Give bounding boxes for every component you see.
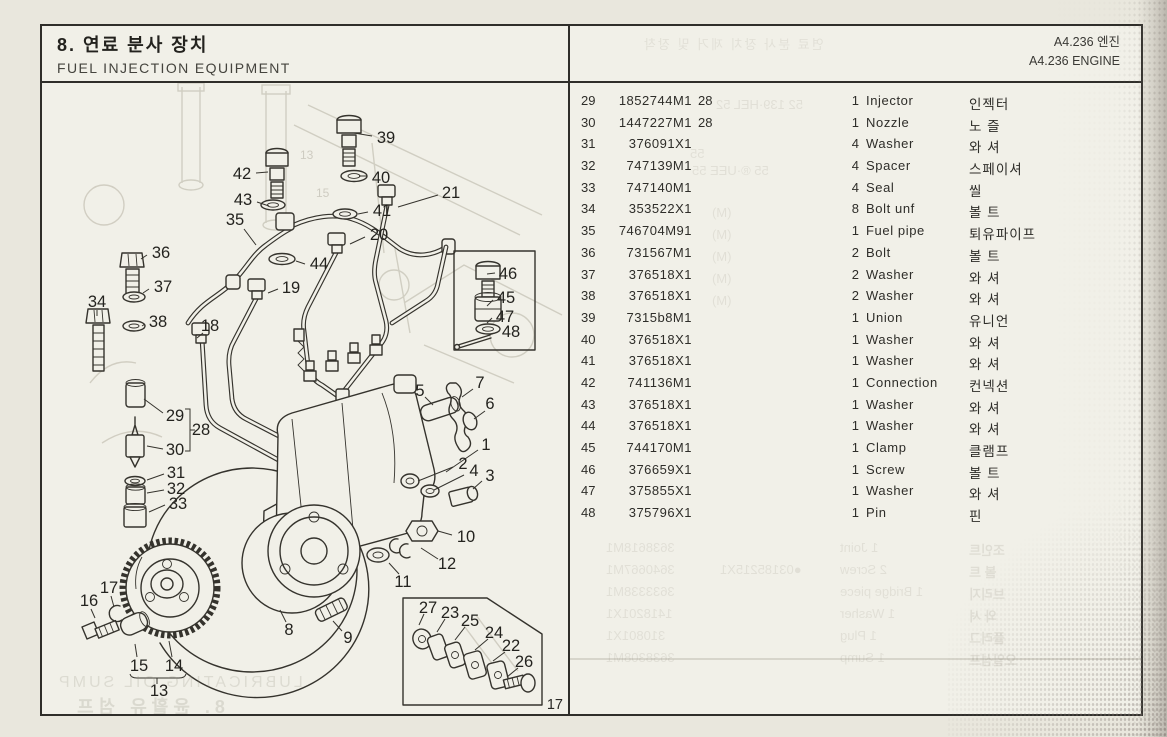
callout-28: 28 [192,421,210,439]
cell-part-number: 741136M1 [604,375,692,390]
cell-description: Pin [866,505,887,520]
bleed-through-mark: 1 Joint [840,540,878,555]
pipe-union-fittings [192,185,395,343]
callout-5: 5 [415,382,424,400]
cell-description: Clamp [866,440,907,455]
cell-description: Injector [866,93,913,108]
callout-34: 34 [88,293,106,311]
cell-qty: 1 [830,93,859,108]
cell-qty: 2 [830,288,859,303]
cell-part-number: 376518X1 [604,288,692,303]
cell-description-korean: 와 셔 [969,267,1001,287]
callout-6: 6 [485,395,494,413]
cell-description: Washer [866,136,914,151]
callout-21: 21 [442,184,460,202]
page-content: 13 15 [42,83,1141,714]
callout-36: 36 [152,244,170,262]
callout-30: 30 [166,441,184,459]
callout-38: 38 [149,313,167,331]
leader-line-20 [350,237,365,244]
parts-row: 31376091X14Washer와 셔 [570,134,1141,156]
bleed-through-mark: 와 셔 [969,606,997,625]
injector-parts-stack [124,380,146,528]
cell-description-korean: 와 셔 [969,353,1001,373]
parts-row: 40376518X11Washer와 셔 [570,330,1141,352]
cell-note: 28 [698,115,712,130]
cell-part-number: 746704M91 [604,223,692,238]
callout-42: 42 [233,165,251,183]
cell-part-number: 375796X1 [604,505,692,520]
cell-part-number: 376518X1 [604,353,692,368]
bleed-through-mark: 1 Sump [840,650,885,665]
bleed-through-mark: 3638618M1 [606,540,675,555]
cell-description-korean: 와 셔 [969,397,1001,417]
cell-qty: 1 [830,332,859,347]
bleed-through-mark: 플러그 [969,628,1005,647]
cell-description: Screw [866,462,905,477]
cell-qty: 1 [830,418,859,433]
cell-qty: 4 [830,136,859,151]
parts-rows: 291852744M1281Injector인젝터301447227M1281N… [570,91,1141,525]
leader-line-17 [111,596,114,607]
bleed-through-mark: 1418201X1 [606,606,673,621]
bleed-through-mark: 조인트 [969,540,1005,559]
exploded-diagram: 13 15 [42,83,568,714]
bleed-through-mark: 1 Washer [840,606,895,621]
callout-2: 2 [458,455,467,473]
callout-1: 1 [481,436,490,454]
bleed-through-mark: 1 Plug [840,628,877,643]
parts-row: 34353522X18Bolt unf볼 트 [570,199,1141,221]
cell-description-korean: 와 셔 [969,332,1001,352]
callout-13: 13 [150,682,168,700]
leader-line-21 [398,195,438,207]
bleed-through-mark: 3638308M1 [606,650,675,665]
cell-qty: 2 [830,267,859,282]
cell-description: Fuel pipe [866,223,925,238]
page-number: 17 [547,697,563,713]
parts-row: 32747139M14Spacer스페이셔 [570,156,1141,178]
cell-part-number: 376518X1 [604,332,692,347]
cell-part-number: 1447227M1 [604,115,692,130]
cell-description: Bolt unf [866,201,915,216]
cell-qty: 2 [830,245,859,260]
callout-8: 8 [284,621,293,639]
parts-row: 42741136M11Connection컨넥션 [570,373,1141,395]
exploded-diagram-panel: 13 15 [42,83,568,714]
bleed-through-header-text: 연료 분사 장치 제거 및 장착 [642,34,824,53]
cell-description-korean: 컨넥션 [969,375,1009,395]
parts-row: 35746704M911Fuel pipe퇴유파이프 [570,221,1141,243]
page-header: 연료 분사 장치 제거 및 장착 8. 연료 분사 장치 FUEL INJECT… [42,26,1141,83]
leader-line-32 [147,490,164,493]
bleed-through-digit: 13 [300,148,314,162]
leader-line-37 [143,289,149,293]
callout-16: 16 [80,592,98,610]
callout-37: 37 [154,278,172,296]
parts-row: 38376518X12Washer와 셔 [570,286,1141,308]
callout-24: 24 [485,624,503,642]
leader-line-6 [474,411,485,419]
cell-description: Washer [866,418,914,433]
cell-part-number: 353522X1 [604,201,692,216]
cell-qty: 4 [830,158,859,173]
parts-row: 33747140M14Seal씰 [570,178,1141,200]
cell-part-number: 375855X1 [604,483,692,498]
cell-qty: 1 [830,223,859,238]
cell-description: Seal [866,180,894,195]
engine-model-block: A4.236 엔진 A4.236 ENGINE [1029,33,1120,71]
cell-qty: 1 [830,440,859,455]
cell-description-korean: 스페이셔 [969,158,1023,178]
leader-line-7 [462,389,473,397]
callout-27: 27 [419,599,437,617]
parts-row: 45744170M11Clamp클램프 [570,438,1141,460]
bleed-through-mark: 2 Screw [840,562,887,577]
callout-4: 4 [469,462,478,480]
cell-qty: 1 [830,115,859,130]
bleed-through-mark: 3640667M1 [606,562,675,577]
bleed-through-mark: 브리지 [969,584,1005,603]
parts-list-panel: 291852744M1281Injector인젝터301447227M1281N… [570,83,1141,714]
callout-43: 43 [234,191,252,209]
callout-9: 9 [343,629,352,647]
bleed-through-mark: 310801X1 [606,628,665,643]
callout-41: 41 [373,202,391,220]
injection-pump [242,329,435,613]
cell-description: Union [866,310,903,325]
leader-line-41 [358,212,368,214]
callout-25: 25 [461,612,479,630]
parts-row: 48375796X11Pin핀 [570,503,1141,525]
cell-qty: 1 [830,353,859,368]
section-title-english: FUEL INJECTION EQUIPMENT [57,60,291,76]
callout-45: 45 [497,289,515,307]
cell-description-korean: 볼 트 [969,245,1001,265]
cell-part-number: 376518X1 [604,397,692,412]
parts-row: 36731567M12Bolt볼 트 [570,243,1141,265]
leader-line-3 [473,481,482,489]
leader-line-10 [438,531,452,535]
cell-qty: 8 [830,201,859,216]
bleed-through-mark: 볼 트 [969,562,997,581]
callout-10: 10 [457,528,475,546]
cell-part-number: 747139M1 [604,158,692,173]
leader-line-4 [434,475,464,490]
parts-row: 46376659X11Screw볼 트 [570,460,1141,482]
bleed-through-mark: 오일섬프 [969,650,1017,669]
callout-23: 23 [441,604,459,622]
cell-description: Washer [866,353,914,368]
leader-line-15 [135,644,137,657]
page-frame: 연료 분사 장치 제거 및 장착 8. 연료 분사 장치 FUEL INJECT… [40,24,1143,716]
cell-qty: 1 [830,397,859,412]
parts-row: 291852744M1281Injector인젝터 [570,91,1141,113]
cell-qty: 1 [830,462,859,477]
callout-11: 11 [394,573,411,591]
cell-description: Washer [866,397,914,412]
engine-model-english: A4.236 ENGINE [1029,52,1120,71]
callout-3: 3 [485,467,494,485]
cell-description: Washer [866,483,914,498]
callout-17: 17 [100,579,118,597]
cell-description-korean: 볼 트 [969,201,1001,221]
callout-12: 12 [438,555,456,573]
leader-line-44 [296,261,305,264]
cell-description-korean: 유니언 [969,310,1009,330]
leader-line-33 [149,505,165,512]
cell-description: Washer [866,288,914,303]
callout-35: 35 [226,211,244,229]
bleed-through-line [570,658,1141,660]
leader-line-16 [91,609,95,618]
callout-48: 48 [502,323,520,341]
cell-description: Spacer [866,158,911,173]
cell-part-number: 744170M1 [604,440,692,455]
callout-46: 46 [499,265,517,283]
leader-line-30 [147,446,163,449]
callout-26: 26 [515,653,533,671]
callout-33: 33 [169,495,187,513]
cell-description-korean: 와 셔 [969,483,1001,503]
cell-description-korean: 씰 [969,180,982,200]
cell-description-korean: 노 즐 [969,115,1001,135]
bleed-through-mark: ●03185215X1 [720,562,802,577]
callout-39: 39 [377,129,395,147]
cell-qty: 1 [830,483,859,498]
cell-description-korean: 와 셔 [969,418,1001,438]
callout-44: 44 [310,255,328,273]
callout-14: 14 [165,657,183,675]
cell-qty: 1 [830,375,859,390]
cell-description-korean: 인젝터 [969,93,1009,113]
engine-model-korean: A4.236 엔진 [1029,33,1120,52]
parts-row: 41376518X11Washer와 셔 [570,351,1141,373]
cell-part-number: 731567M1 [604,245,692,260]
callout-20: 20 [370,226,388,244]
scanned-catalog-page: { "header": { "section_title_ko": "8. 연료… [0,0,1167,737]
cell-description: Bolt [866,245,891,260]
leader-line-14 [169,641,172,657]
parts-row: 301447227M1281Nozzle노 즐 [570,113,1141,135]
bleed-through-digit: 15 [316,186,330,200]
section-title-korean: 8. 연료 분사 장치 [57,31,291,57]
cell-description-korean: 와 셔 [969,288,1001,308]
leader-line-31 [147,474,164,480]
leader-line-12 [421,548,438,559]
leader-line-35 [244,229,256,245]
callout-40: 40 [372,169,390,187]
callout-19: 19 [282,279,300,297]
section-title-block: 8. 연료 분사 장치 FUEL INJECTION EQUIPMENT [57,31,291,76]
cell-description-korean: 퇴유파이프 [969,223,1036,243]
cell-qty: 1 [830,505,859,520]
callout-7: 7 [475,374,484,392]
parts-row: 47375855X11Washer와 셔 [570,481,1141,503]
cell-part-number: 1852744M1 [604,93,692,108]
cell-part-number: 376518X1 [604,267,692,282]
leader-line-19 [268,289,278,293]
cell-part-number: 376091X1 [604,136,692,151]
callout-15: 15 [130,657,148,675]
cell-description: Connection [866,375,938,390]
bleed-through-mark: 1 Bridge piece [840,584,923,599]
cell-part-number: 7315b8M1 [604,310,692,325]
cell-description: Nozzle [866,115,909,130]
cell-description: Washer [866,267,914,282]
cell-part-number: 747140M1 [604,180,692,195]
cell-description-korean: 볼 트 [969,462,1001,482]
cell-part-number: 376518X1 [604,418,692,433]
cell-qty: 1 [830,310,859,325]
parts-row: 37376518X12Washer와 셔 [570,265,1141,287]
cell-description-korean: 와 셔 [969,136,1001,156]
cell-qty: 4 [830,180,859,195]
parts-row: 44376518X11Washer와 셔 [570,416,1141,438]
mounting-bolts-washers [86,253,145,371]
parts-row: 397315b8M11Union유니언 [570,308,1141,330]
cell-description-korean: 핀 [969,505,982,525]
cell-note: 28 [698,93,712,108]
callout-29: 29 [166,407,184,425]
bleed-through-mark: 3633338M1 [606,584,675,599]
cell-description: Washer [866,332,914,347]
callout-18: 18 [201,317,219,335]
cell-description-korean: 클램프 [969,440,1009,460]
cell-part-number: 376659X1 [604,462,692,477]
leader-line-29 [144,399,163,413]
parts-row: 43376518X11Washer와 셔 [570,395,1141,417]
